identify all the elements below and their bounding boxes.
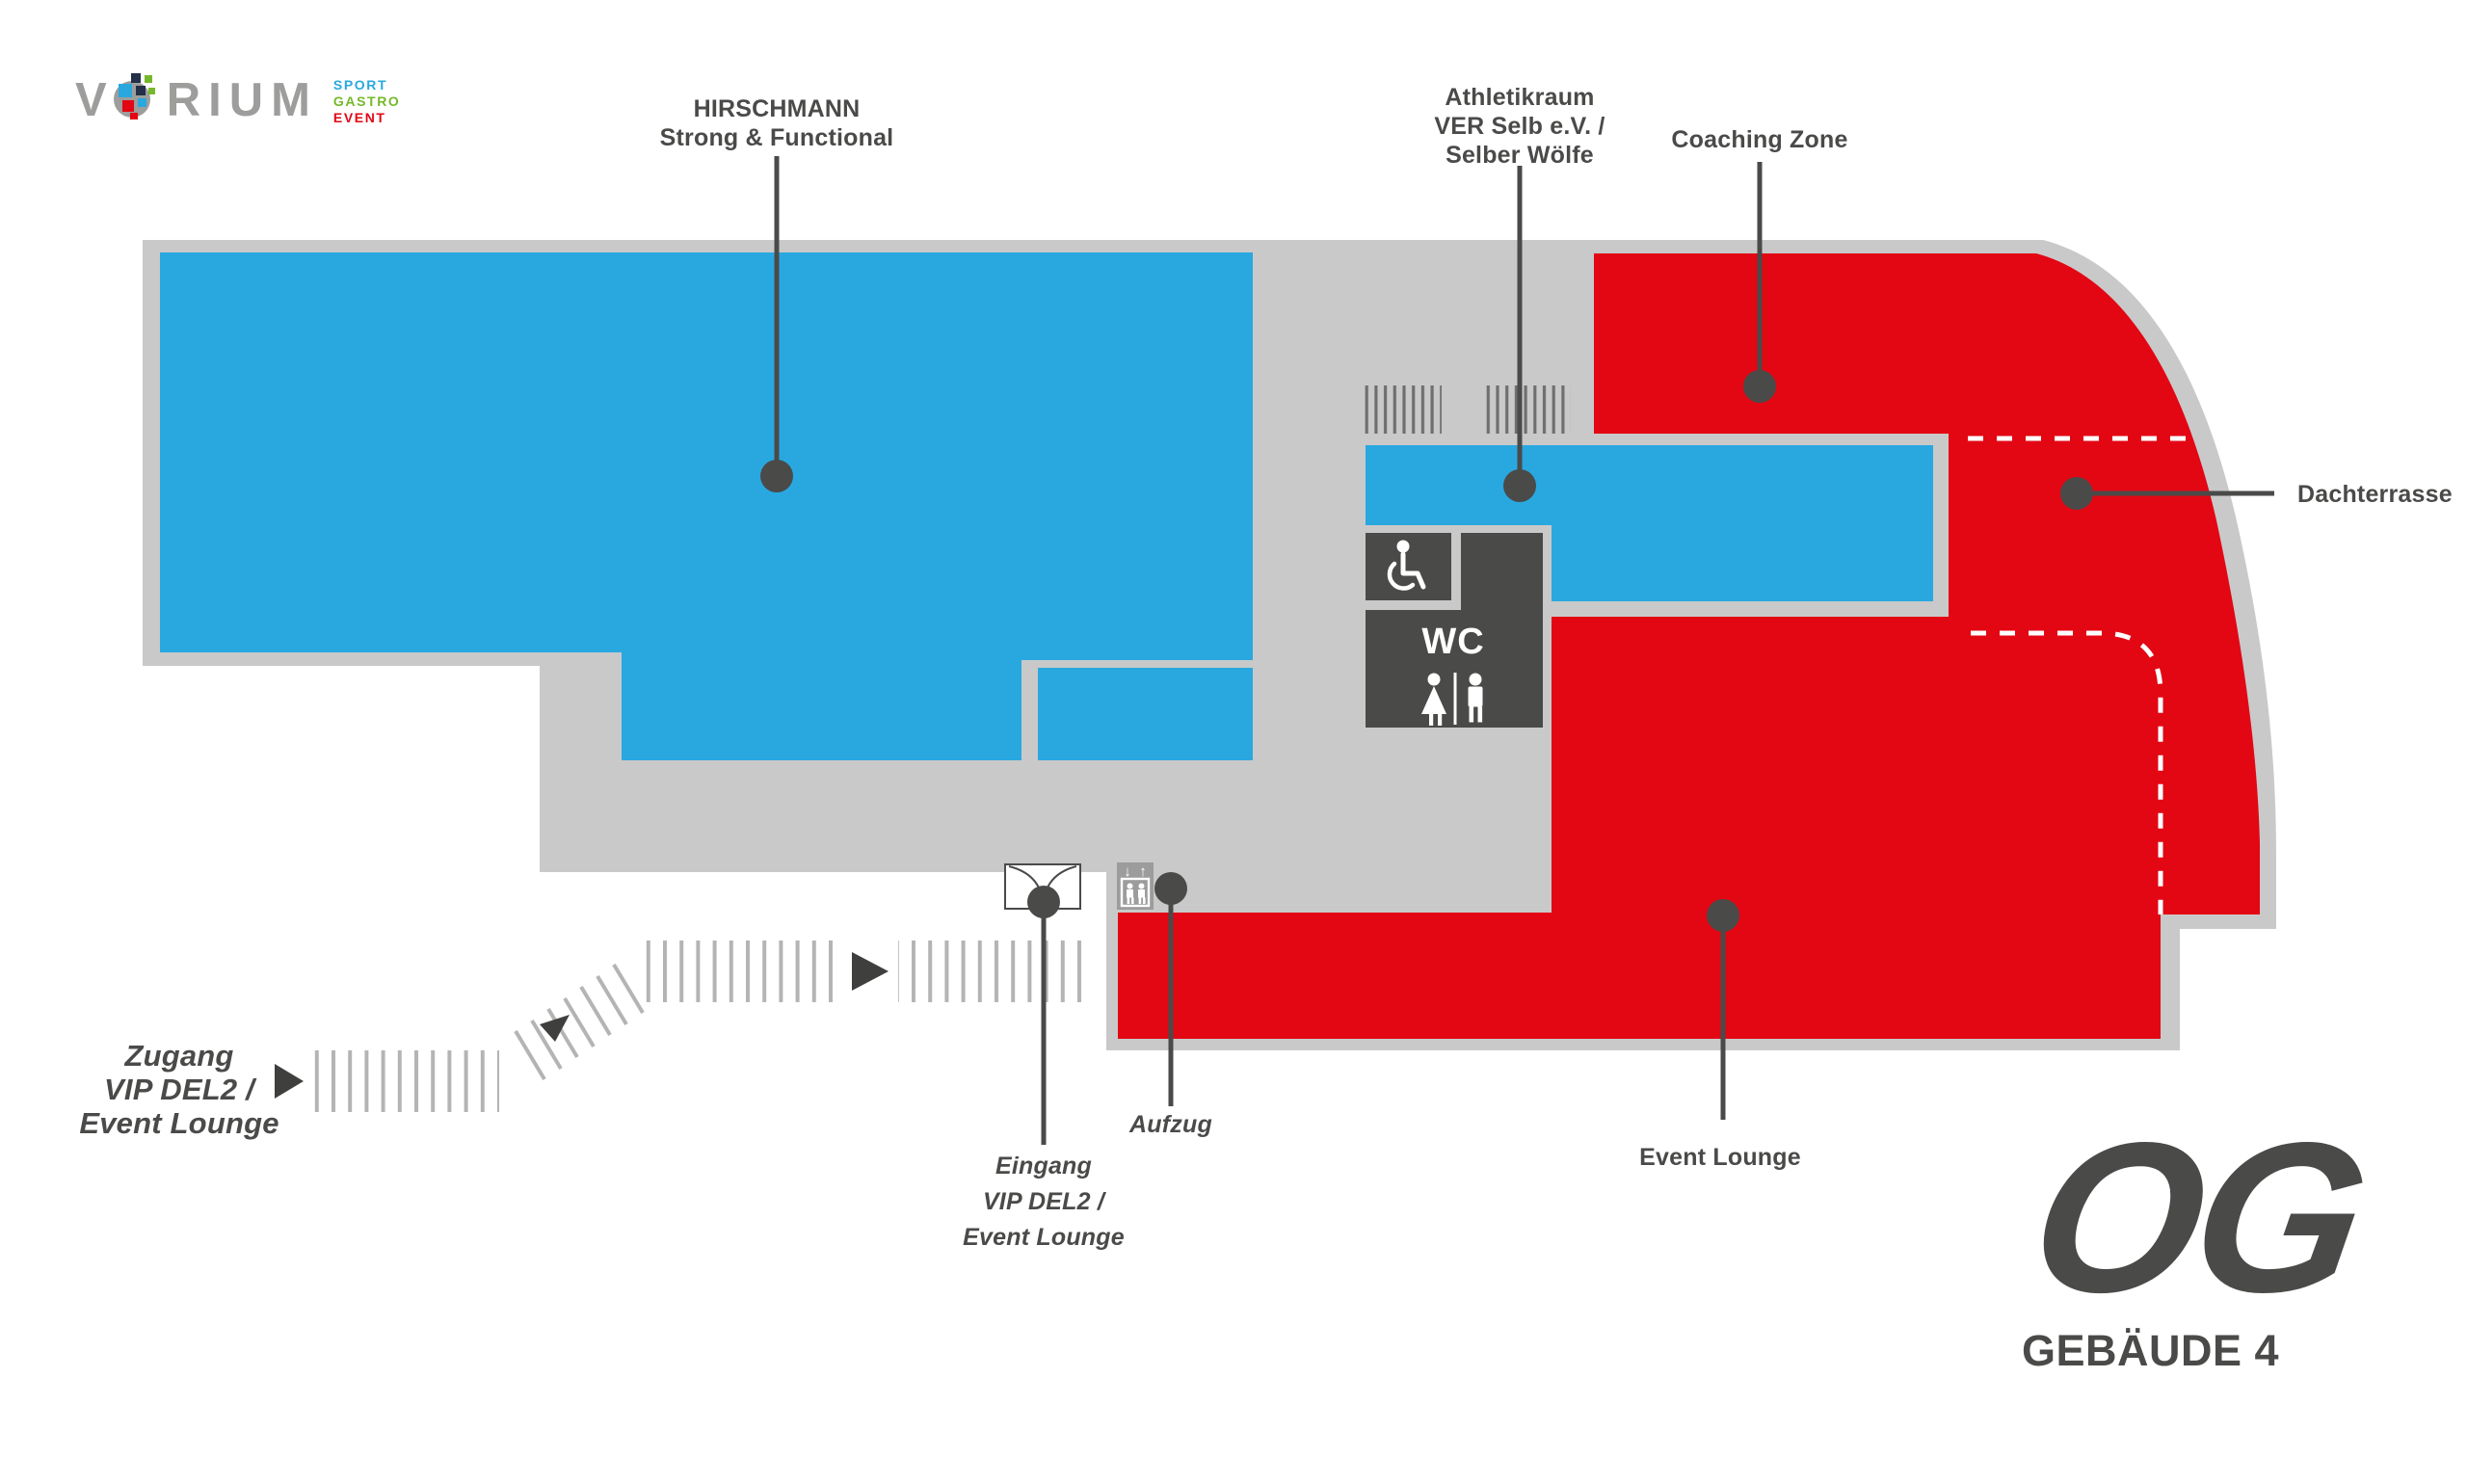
label-zugang-line3: Event Lounge (0, 1106, 372, 1140)
walkway-hatch-top-b (898, 941, 1087, 1002)
dot-coaching (1743, 370, 1776, 403)
logo-letter-v: V (75, 77, 115, 124)
floorplan-page: { "logo": { "brand_start": "V", "brand_e… (0, 0, 2467, 1484)
dot-aufzug (1154, 872, 1187, 905)
label-wc: WC (1381, 622, 1525, 663)
label-eingang-line2: VIP DEL2 / (851, 1184, 1236, 1220)
tagline-gastro: GASTRO (333, 93, 401, 110)
label-aufzug: Aufzug (978, 1110, 1364, 1139)
label-hirschmann: HIRSCHMANN Strong & Functional (584, 94, 969, 152)
stairs-hatch-right (1482, 385, 1571, 434)
logo-letters-rium: RIUM (167, 77, 318, 124)
label-event-lounge: Event Lounge (1527, 1143, 1913, 1172)
vorium-wordmark: V RIUM (75, 73, 318, 128)
label-zugang-line1: Zugang (0, 1039, 372, 1073)
label-hirschmann-line1: HIRSCHMANN (584, 94, 969, 123)
elevator-icon: ↓ ↑ (1117, 862, 1154, 910)
vorium-logo: V RIUM SPORT GASTRO EVENT (75, 73, 400, 128)
dot-dachterrasse (2060, 477, 2093, 510)
dot-event-lounge (1707, 899, 1739, 932)
walkway-hatch-top-a (639, 941, 843, 1002)
tagline-event: EVENT (333, 110, 401, 126)
logo-tagline: SPORT GASTRO EVENT (333, 77, 401, 126)
label-eingang: Eingang VIP DEL2 / Event Lounge (851, 1149, 1236, 1256)
logo-o-pixel-icon (113, 73, 163, 128)
dot-eingang (1027, 886, 1060, 918)
label-athletikraum-line1: Athletikraum (1327, 83, 1712, 112)
walkway-hatch-diagonal (516, 965, 643, 1079)
direction-arrow-top-icon (852, 952, 889, 991)
label-eingang-line3: Event Lounge (851, 1220, 1236, 1256)
stairs-hatch-left (1363, 385, 1442, 434)
label-hirschmann-line2: Strong & Functional (584, 123, 969, 152)
svg-text:↑: ↑ (1139, 863, 1147, 880)
room-hirschmann-annex (1038, 668, 1253, 760)
dot-athletikraum (1503, 469, 1536, 502)
label-coaching-zone: Coaching Zone (1567, 125, 1952, 154)
label-zugang: Zugang VIP DEL2 / Event Lounge (0, 1039, 372, 1140)
tagline-sport: SPORT (333, 77, 401, 93)
dot-hirschmann (760, 460, 793, 492)
wc-accessible-room (1366, 533, 1451, 600)
label-eingang-line1: Eingang (851, 1149, 1236, 1184)
label-dachterrasse: Dachterrasse (2297, 480, 2453, 509)
label-zugang-line2: VIP DEL2 / (0, 1073, 372, 1106)
floor-badge: OG GEBÄUDE 4 (2022, 1126, 2343, 1376)
floor-level-code: OG (2022, 1126, 2373, 1311)
svg-text:↓: ↓ (1124, 863, 1131, 880)
